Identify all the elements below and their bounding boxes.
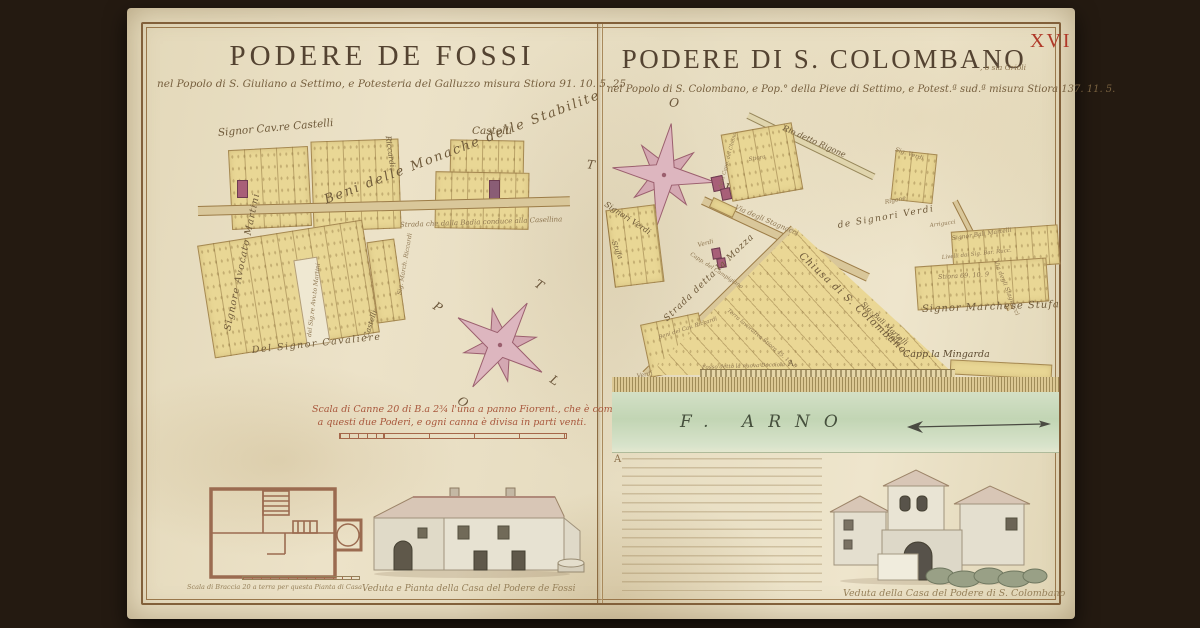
right-title: PODERE DI S. COLOMBANO <box>614 44 1034 75</box>
map-label: Capp.la Mingarda <box>903 350 990 360</box>
scale-note-line2: a questi due Poderi, e ogni canna è divi… <box>312 417 592 428</box>
plan-scale-caption: Scala di Braccia 20 a terra per questa P… <box>187 583 362 591</box>
plan-scale-bar <box>242 576 360 580</box>
scale-bar-fine <box>339 433 384 439</box>
photo-background: XVI PODERE DE FOSSI nel Popolo di S. Giu… <box>0 0 1200 628</box>
map-label: A <box>788 360 794 368</box>
center-fold <box>597 24 603 603</box>
house-elevation-colombano <box>820 460 1058 588</box>
river-bank-vegetation <box>612 377 1059 393</box>
scale-note-line1: Scala di Canne 20 di B.a 2¾ l'una a pann… <box>312 404 592 415</box>
right-title-suffix: , o sia Grioli <box>980 64 1026 72</box>
left-house-caption: Veduta e Pianta della Casa del Podere de… <box>362 584 575 594</box>
house-elevation-fossi <box>358 485 586 581</box>
left-subtitle: nel Popolo di S. Giuliano a Settimo, e P… <box>157 78 607 90</box>
folio-number: XVI <box>1030 30 1072 53</box>
annotation-initial: A <box>614 455 621 465</box>
flow-arrow-icon <box>903 418 1053 434</box>
river-label: F. ARNO <box>680 412 852 432</box>
scale-bar-coarse <box>384 433 567 439</box>
compass-letter-n: O <box>668 95 680 110</box>
house-floor-plan <box>205 484 367 586</box>
faded-annotation-block <box>622 458 822 591</box>
farm-building <box>237 180 248 198</box>
farm-building <box>720 187 732 201</box>
right-subtitle: nel Popolo di S. Colombano, e Pop.° dell… <box>607 84 1057 95</box>
right-house-caption: Veduta della Casa del Podere di S. Colom… <box>843 588 1065 599</box>
left-title: PODERE DE FOSSI <box>167 40 597 73</box>
map-sheet: XVI PODERE DE FOSSI nel Popolo di S. Giu… <box>127 8 1075 619</box>
